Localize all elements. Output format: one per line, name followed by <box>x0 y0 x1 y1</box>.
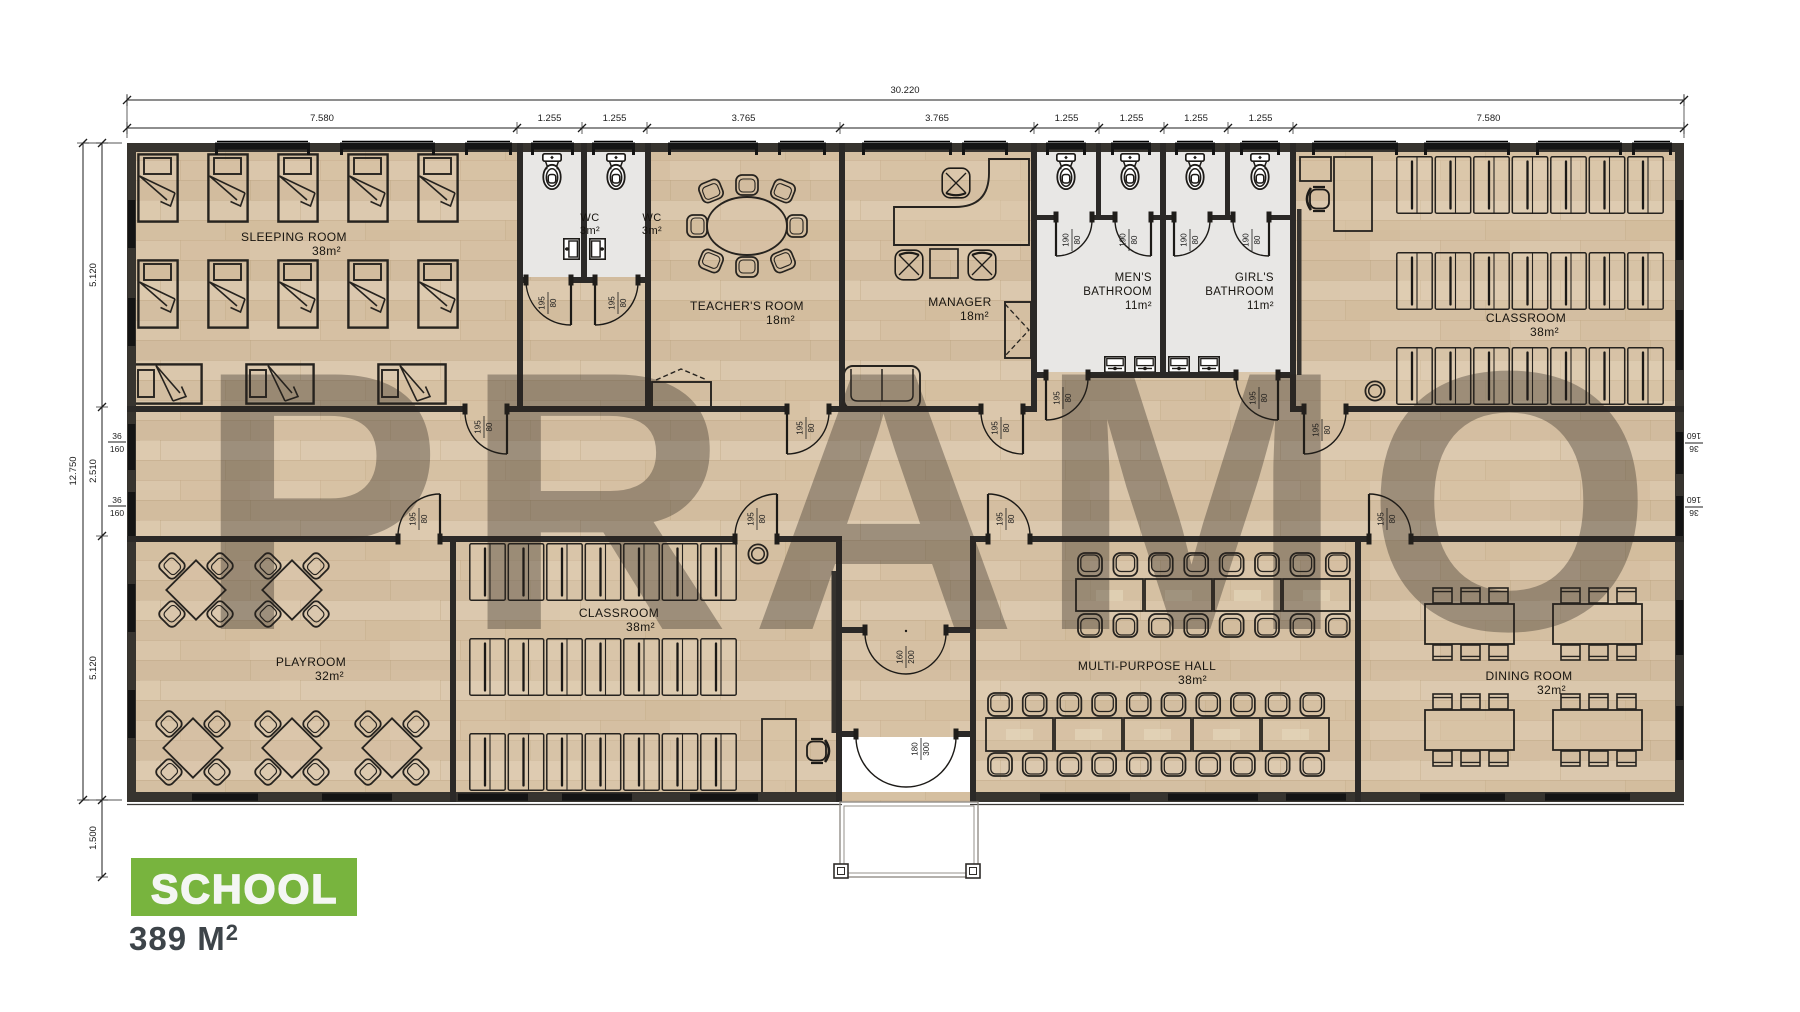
svg-text:160: 160 <box>1687 431 1701 441</box>
svg-text:80: 80 <box>1253 235 1262 244</box>
svg-text:7.580: 7.580 <box>310 113 334 124</box>
svg-text:36: 36 <box>1689 508 1699 518</box>
svg-text:1.255: 1.255 <box>538 113 562 124</box>
svg-text:3.765: 3.765 <box>925 113 949 124</box>
svg-text:1.255: 1.255 <box>1120 113 1144 124</box>
svg-text:3m²: 3m² <box>580 225 600 237</box>
svg-text:2.510: 2.510 <box>88 459 99 483</box>
svg-text:1.255: 1.255 <box>603 113 627 124</box>
svg-text:GIRL'S: GIRL'S <box>1235 272 1274 284</box>
svg-text:80: 80 <box>1073 235 1082 244</box>
svg-text:80: 80 <box>1191 235 1200 244</box>
svg-text:36: 36 <box>112 495 122 505</box>
svg-text:180: 180 <box>911 742 920 756</box>
svg-text:3.765: 3.765 <box>732 113 756 124</box>
svg-text:190: 190 <box>1119 233 1128 247</box>
svg-text:190: 190 <box>1062 233 1071 247</box>
svg-text:190: 190 <box>1180 233 1189 247</box>
svg-text:7.580: 7.580 <box>1477 113 1501 124</box>
svg-text:30.220: 30.220 <box>890 85 919 96</box>
svg-text:190: 190 <box>1242 233 1251 247</box>
svg-text:SLEEPING ROOM: SLEEPING ROOM <box>241 230 347 244</box>
svg-text:PRAMO: PRAMO <box>196 295 1673 708</box>
svg-text:300: 300 <box>922 742 931 756</box>
svg-text:5.120: 5.120 <box>88 656 99 680</box>
svg-text:1.500: 1.500 <box>88 826 99 850</box>
svg-text:160: 160 <box>110 444 124 454</box>
svg-text:WC: WC <box>642 212 661 224</box>
svg-text:80: 80 <box>1130 235 1139 244</box>
svg-text:36: 36 <box>1689 444 1699 454</box>
svg-text:1.255: 1.255 <box>1184 113 1208 124</box>
svg-text:38m²: 38m² <box>312 244 341 258</box>
svg-text:160: 160 <box>1687 495 1701 505</box>
svg-text:5.120: 5.120 <box>88 263 99 287</box>
svg-text:36: 36 <box>112 431 122 441</box>
svg-text:1.255: 1.255 <box>1055 113 1079 124</box>
svg-text:1.255: 1.255 <box>1249 113 1273 124</box>
svg-text:WC: WC <box>580 212 599 224</box>
svg-text:MEN'S: MEN'S <box>1115 272 1152 284</box>
svg-text:389 M2: 389 M2 <box>129 920 239 957</box>
svg-text:SCHOOL: SCHOOL <box>151 866 338 912</box>
svg-text:160: 160 <box>110 508 124 518</box>
svg-text:3m²: 3m² <box>642 225 662 237</box>
svg-text:12.750: 12.750 <box>68 456 79 485</box>
